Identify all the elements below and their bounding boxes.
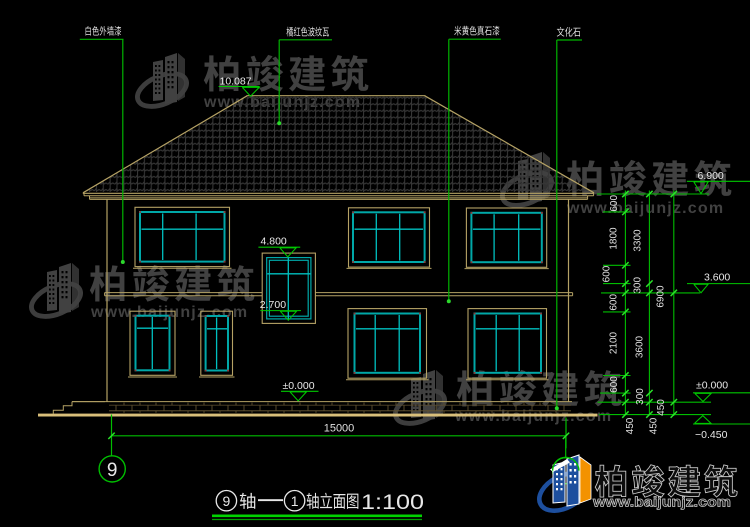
svg-text:300: 300 bbox=[635, 388, 646, 405]
svg-text:2.700: 2.700 bbox=[260, 299, 286, 311]
svg-text:450: 450 bbox=[649, 417, 660, 434]
svg-text:1800: 1800 bbox=[609, 227, 620, 250]
svg-text:450: 450 bbox=[625, 417, 636, 434]
svg-text:±0.000: ±0.000 bbox=[696, 380, 728, 392]
svg-text:4.800: 4.800 bbox=[261, 236, 287, 248]
svg-text:−0.450: −0.450 bbox=[695, 429, 728, 441]
svg-text:www.baijunjz.com: www.baijunjz.com bbox=[566, 200, 724, 217]
svg-text:www.baijunjz.com: www.baijunjz.com bbox=[592, 495, 731, 510]
svg-text:±0.000: ±0.000 bbox=[283, 380, 315, 392]
svg-text:300: 300 bbox=[633, 277, 644, 294]
svg-text:2100: 2100 bbox=[609, 331, 620, 354]
svg-text:6900: 6900 bbox=[656, 285, 667, 308]
svg-text:1: 1 bbox=[291, 493, 299, 509]
svg-text:9: 9 bbox=[107, 460, 118, 481]
svg-text:6.900: 6.900 bbox=[698, 170, 724, 182]
svg-text:600: 600 bbox=[609, 195, 620, 212]
svg-text:600: 600 bbox=[609, 376, 620, 393]
svg-text:600: 600 bbox=[602, 265, 613, 282]
svg-text:600: 600 bbox=[609, 294, 620, 311]
svg-text:3600: 3600 bbox=[635, 335, 646, 358]
svg-text:10.087: 10.087 bbox=[220, 75, 252, 87]
svg-text:1:100: 1:100 bbox=[361, 491, 424, 514]
svg-text:3300: 3300 bbox=[633, 229, 644, 252]
svg-text:3.600: 3.600 bbox=[704, 272, 730, 284]
svg-text:15000: 15000 bbox=[324, 423, 355, 435]
svg-text:450: 450 bbox=[656, 399, 667, 416]
svg-text:9: 9 bbox=[223, 493, 231, 509]
